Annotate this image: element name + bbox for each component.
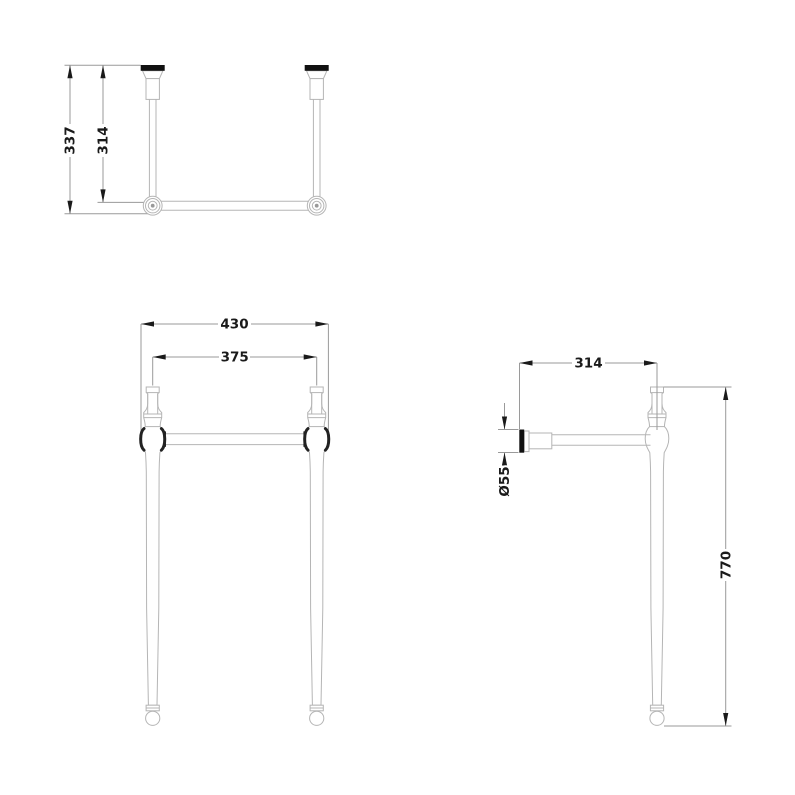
front-leg-left (141, 387, 165, 725)
arrow-down-icon (100, 189, 105, 202)
dimension-label-314-side: 314 (574, 356, 602, 372)
plan-dimension-314: 314 (96, 65, 149, 202)
arrow-up-icon (502, 453, 507, 466)
technical-drawing-page: 337 314 (0, 0, 795, 795)
front-frame-outline (141, 387, 329, 725)
arrow-right-icon (315, 321, 328, 326)
wall-flange-side (519, 430, 524, 453)
side-dimension-314: 314 (520, 356, 658, 430)
arrow-left-icon (520, 360, 533, 365)
dimension-label-770: 770 (718, 551, 734, 579)
arrow-right-icon (644, 360, 657, 365)
leg-joint-left (143, 196, 162, 215)
arrow-up-icon (100, 65, 105, 78)
front-leg-right (305, 387, 329, 725)
arrow-right-icon (304, 354, 317, 359)
side-dimension-flange-diameter: Ø55 (497, 403, 518, 497)
arrow-down-icon (723, 713, 728, 726)
wall-arm (519, 430, 650, 453)
arrow-down-icon (502, 417, 507, 430)
leg-joint-right (307, 196, 326, 215)
dimension-label-diameter-55: Ø55 (497, 466, 513, 496)
arrow-left-icon (141, 321, 154, 326)
side-frame-outline (519, 387, 669, 725)
crossbar (164, 431, 306, 446)
front-dimension-375: 375 (153, 350, 317, 386)
front-view: 430 375 (141, 317, 329, 726)
arrow-up-icon (723, 387, 728, 400)
side-view: 314 Ø55 770 (497, 356, 734, 726)
side-leg (645, 387, 669, 725)
plan-frame-outline (141, 65, 329, 215)
wall-flange-right (305, 65, 329, 99)
washstand-technical-drawing: 337 314 (0, 0, 795, 795)
arrow-up-icon (67, 65, 72, 78)
wall-flange-left (141, 65, 165, 99)
dimension-label-314-plan: 314 (96, 126, 112, 154)
side-dimension-770: 770 (664, 387, 735, 726)
arrow-left-icon (153, 354, 166, 359)
arrow-down-icon (67, 201, 72, 214)
dimension-label-430: 430 (220, 317, 248, 333)
plan-view: 337 314 (63, 65, 329, 215)
front-dimension-430: 430 (141, 317, 328, 447)
dimension-label-375: 375 (221, 350, 249, 366)
dimension-label-337: 337 (63, 126, 79, 154)
